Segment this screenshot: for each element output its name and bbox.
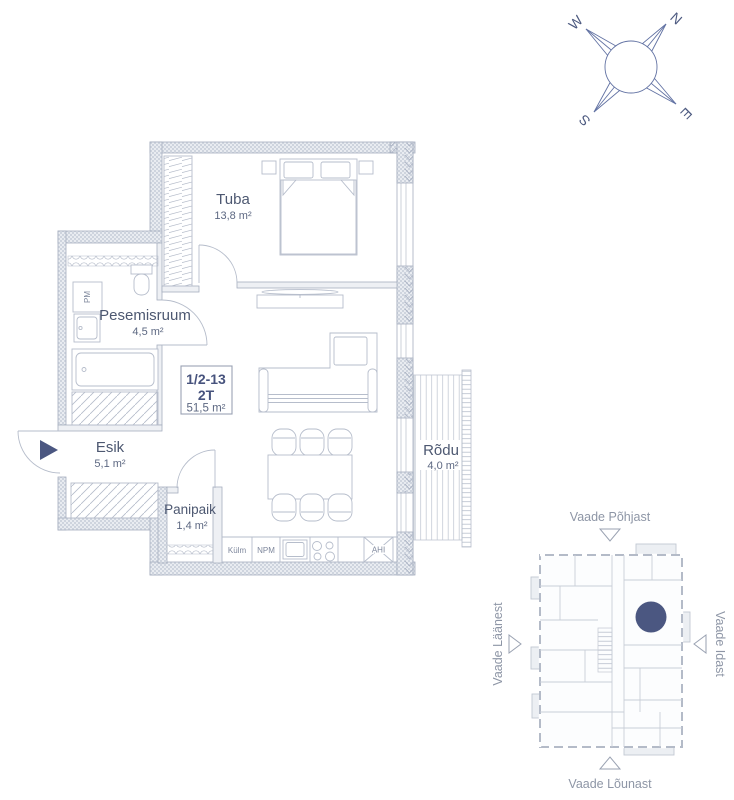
door-panipaik	[177, 450, 215, 488]
wall-bath-bottom	[58, 425, 162, 431]
view-south-arrow-icon	[600, 757, 620, 769]
wall-panipaik-top	[167, 487, 178, 493]
compass-rose: N E S W	[565, 9, 695, 130]
minimap-label-east: Vaade Idast	[713, 611, 727, 677]
room-esik-name: Esik	[96, 439, 125, 456]
compass-letter-w: W	[565, 12, 586, 33]
fridge-label: Külm	[228, 546, 247, 555]
compass-letter-n: N	[667, 9, 685, 28]
sofa-chaise-cushion	[334, 337, 367, 365]
partition-stone-panipaik	[167, 545, 213, 554]
room-pesemisruum-name: Pesemisruum	[99, 307, 191, 324]
tv-stand	[257, 290, 343, 308]
room-tuba-area: 13,8 m²	[214, 210, 252, 222]
pillow-left	[284, 162, 313, 178]
floor-plan: PM	[18, 142, 471, 575]
stove	[313, 542, 335, 562]
living-furniture	[259, 333, 377, 521]
oven-label: AHI	[372, 546, 385, 555]
unit-type: 2T	[198, 387, 215, 403]
dining-set	[268, 429, 352, 521]
sofa-armrest-right	[368, 369, 377, 412]
hall-closet	[71, 483, 158, 518]
door-bedroom	[199, 245, 237, 283]
bathroom-sink	[74, 314, 100, 342]
view-east-arrow-icon	[694, 635, 706, 653]
view-west-arrow-icon	[509, 635, 521, 653]
compass-letter-s: S	[576, 112, 594, 130]
minimap-label-west: Vaade Läänest	[491, 602, 505, 686]
dining-table	[268, 455, 352, 499]
nightstand-left	[262, 161, 276, 174]
minimap: Vaade Põhjast Vaade Lõunast Vaade Läänes…	[491, 510, 727, 791]
nightstand-right	[359, 161, 373, 174]
room-tuba-name: Tuba	[216, 191, 250, 208]
unit-info-box: 1/2-13 2T 51,5 m²	[181, 366, 232, 415]
bathtub	[72, 349, 158, 390]
entrance-arrow-icon	[40, 440, 58, 460]
washing-machine-label: PM	[83, 291, 92, 303]
shower-floor	[72, 392, 158, 425]
kitchen-sink	[283, 540, 307, 559]
room-pesemisruum-area: 4,5 m²	[132, 326, 164, 338]
toilet	[131, 265, 152, 295]
wall-under-wardrobe	[162, 286, 199, 292]
wall-bedroom-left	[150, 142, 162, 237]
minimap-label-south: Vaade Lõunast	[568, 777, 652, 791]
minimap-building	[531, 544, 690, 755]
minimap-unit-dot	[636, 602, 667, 633]
room-panipaik-area: 1,4 m²	[176, 520, 208, 532]
pillow-right	[321, 162, 350, 178]
room-panipaik-name: Panipaik	[164, 502, 216, 517]
wall-left-upper	[58, 231, 66, 425]
wall-panipaik-right	[213, 487, 222, 563]
room-esik-area: 5,1 m²	[94, 458, 126, 470]
bedroom-wardrobe	[164, 156, 192, 286]
balcony-railing	[462, 370, 471, 547]
bed	[280, 159, 357, 255]
compass-circle	[605, 41, 657, 93]
minimap-staircase	[598, 628, 612, 672]
wall-hall-upper	[157, 243, 162, 300]
chairs-top	[272, 429, 352, 456]
room-rodu-area: 4,0 m²	[427, 460, 459, 472]
balcony: Rõdu 4,0 m²	[414, 370, 471, 547]
wall-bottom-left	[58, 518, 160, 530]
floorplan-canvas: N E S W	[0, 0, 734, 800]
blanket	[281, 180, 356, 254]
wall-panipaik-left	[158, 487, 167, 563]
view-north-arrow-icon	[600, 529, 620, 541]
compass-letter-e: E	[678, 105, 696, 123]
chairs-bottom	[272, 494, 352, 521]
unit-number: 1/2-13	[186, 371, 226, 387]
bathroom-fixtures: PM	[72, 265, 158, 425]
kitchen: Külm NPM AHI	[222, 537, 397, 562]
wall-bedroom-bottom	[237, 282, 397, 288]
sofa	[259, 333, 377, 412]
washing-machine: PM	[73, 282, 102, 312]
floorplan-page: N E S W	[0, 0, 734, 800]
wall-top	[150, 142, 415, 153]
unit-total-area: 51,5 m²	[187, 403, 226, 415]
dishwasher-label: NPM	[257, 546, 275, 555]
sofa-armrest-left	[259, 369, 268, 412]
partition-stone-bath	[68, 256, 158, 266]
room-rodu-name: Rõdu	[423, 442, 459, 459]
wall-bottom	[150, 562, 415, 575]
right-wall	[397, 142, 413, 575]
wall-bath-top	[58, 231, 162, 243]
minimap-label-north: Vaade Põhjast	[570, 510, 651, 524]
